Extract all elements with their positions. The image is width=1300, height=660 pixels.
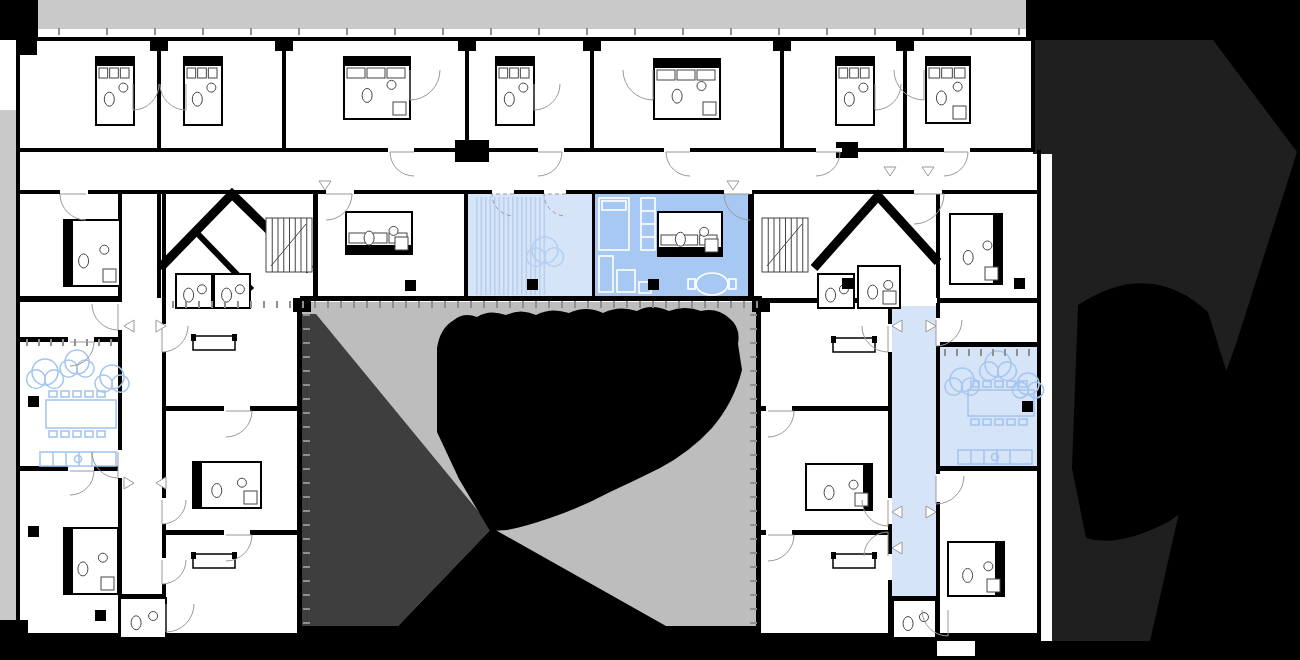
door-opening xyxy=(538,148,564,152)
kitchen-unit xyxy=(520,68,529,78)
door-opening xyxy=(68,337,94,342)
toilet-fixture xyxy=(672,89,682,103)
window-tick xyxy=(185,301,187,308)
toilet-fixture xyxy=(963,250,973,264)
west-walkway xyxy=(0,110,16,622)
bathroom-pod xyxy=(893,600,936,638)
window-tick xyxy=(303,566,310,568)
window-tick xyxy=(303,384,310,386)
window-tick xyxy=(756,301,758,308)
kitchen-unit xyxy=(942,68,953,78)
window-tick xyxy=(392,301,394,308)
kitchen-unit xyxy=(954,68,965,78)
window-tick xyxy=(586,28,588,35)
window-tick xyxy=(639,301,641,308)
window-tick xyxy=(302,301,304,308)
column xyxy=(1014,278,1025,289)
window-tick xyxy=(535,301,537,308)
window-tick xyxy=(442,28,444,35)
wall xyxy=(938,342,1039,347)
basin-fixture xyxy=(197,285,206,294)
shower-fixture xyxy=(101,577,114,590)
toilet-fixture xyxy=(675,232,685,246)
stair-tread xyxy=(791,218,792,272)
window-tick xyxy=(678,301,680,308)
window-tick xyxy=(444,301,446,308)
basin-fixture xyxy=(884,280,893,289)
kitchen-bar xyxy=(926,57,970,66)
window-tick xyxy=(298,28,300,35)
window-tick xyxy=(750,454,757,456)
door-opening xyxy=(492,190,514,194)
stair-tread xyxy=(779,218,780,272)
window-tick xyxy=(224,301,226,308)
window-tick xyxy=(750,328,757,330)
window-tick xyxy=(154,28,156,35)
window-tick xyxy=(778,28,780,35)
window-tick xyxy=(826,28,828,35)
wall xyxy=(465,41,469,148)
window-tick xyxy=(613,301,615,308)
lounge-hatch-line xyxy=(485,197,487,295)
window-tick xyxy=(237,301,239,308)
window-tick xyxy=(346,28,348,35)
desk-post xyxy=(872,336,877,343)
window-tick xyxy=(457,301,459,308)
window-tick xyxy=(303,594,310,596)
lounge-hatch-line xyxy=(503,197,505,295)
wall-pier xyxy=(752,298,770,312)
window-tick xyxy=(303,398,310,400)
wall xyxy=(748,190,754,298)
window-tick xyxy=(574,301,576,308)
basin-fixture xyxy=(237,478,246,487)
door-opening xyxy=(936,474,940,502)
desk xyxy=(193,336,235,350)
toilet-fixture xyxy=(963,568,973,582)
window-tick xyxy=(289,301,291,308)
lounge-hatch-line xyxy=(499,197,501,295)
toilet-fixture xyxy=(824,486,834,500)
toilet-fixture xyxy=(131,616,141,630)
shower-fixture xyxy=(883,291,896,304)
wall xyxy=(300,296,762,301)
window-tick xyxy=(62,339,64,346)
window-tick xyxy=(303,412,310,414)
lounge-hatch-line xyxy=(481,197,483,295)
shower-fixture xyxy=(393,102,406,115)
door-opening xyxy=(162,558,166,584)
window-tick xyxy=(743,301,745,308)
basin-fixture xyxy=(149,612,158,621)
window-tick xyxy=(522,301,524,308)
toilet-fixture xyxy=(903,617,913,631)
toilet-fixture xyxy=(212,484,222,498)
window-tick xyxy=(538,28,540,35)
window-tick xyxy=(652,301,654,308)
window-tick xyxy=(1028,349,1030,356)
kitchen-bar xyxy=(96,57,134,66)
wall xyxy=(464,194,468,298)
stair-tread xyxy=(278,218,279,272)
wall xyxy=(938,466,1039,471)
basin-fixture xyxy=(849,480,858,489)
desk-post xyxy=(232,334,237,341)
bathroom-pod xyxy=(96,57,134,125)
kitchen-unit xyxy=(510,68,519,78)
wall-pier xyxy=(773,41,791,51)
window-tick xyxy=(250,301,252,308)
basin-fixture xyxy=(984,562,993,571)
window-tick xyxy=(1004,349,1006,356)
window-tick xyxy=(750,398,757,400)
window-tick xyxy=(340,301,342,308)
toilet-fixture xyxy=(364,231,374,245)
window-tick xyxy=(263,301,265,308)
toilet-fixture xyxy=(868,285,878,299)
wall xyxy=(780,41,784,148)
window-tick xyxy=(750,440,757,442)
kitchen-bar xyxy=(496,57,534,66)
lounge-hatch-line xyxy=(517,197,519,295)
window-tick xyxy=(682,28,684,35)
lounge-hatch-line xyxy=(508,197,510,295)
window-tick xyxy=(110,339,112,346)
window-tick xyxy=(50,339,52,346)
door-opening xyxy=(766,406,792,411)
east-corridor[interactable] xyxy=(892,306,936,598)
door-opening xyxy=(914,190,942,194)
west-walkway-upper xyxy=(0,37,16,112)
window-tick xyxy=(38,339,40,346)
basin-fixture xyxy=(983,241,992,250)
window-tick xyxy=(26,339,28,346)
window-tick xyxy=(626,301,628,308)
lounge-hatch-line xyxy=(521,197,523,295)
stair-tread xyxy=(774,218,775,272)
door-opening xyxy=(326,190,354,194)
column xyxy=(527,279,538,290)
stair-tread xyxy=(797,218,798,272)
window-tick xyxy=(106,28,108,35)
door-opening xyxy=(766,530,792,535)
desk xyxy=(833,554,875,568)
kitchen-bar xyxy=(64,528,73,594)
wall xyxy=(590,41,594,148)
window-tick xyxy=(303,510,310,512)
door-opening xyxy=(544,190,566,194)
window-tick xyxy=(303,622,310,624)
window-tick xyxy=(303,482,310,484)
door-opening xyxy=(162,498,166,524)
wall-pier xyxy=(150,41,168,51)
door-opening xyxy=(664,148,690,152)
window-tick xyxy=(418,301,420,308)
window-tick xyxy=(303,356,310,358)
floor-plan-canvas xyxy=(0,0,1300,660)
window-tick xyxy=(634,28,636,35)
toilet-fixture xyxy=(844,92,854,106)
window-tick xyxy=(303,552,310,554)
column xyxy=(1022,401,1033,412)
kitchen-unit xyxy=(110,68,119,78)
kitchen-unit xyxy=(499,68,508,78)
window-tick xyxy=(483,301,485,308)
window-tick xyxy=(327,301,329,308)
lounge-hatch-line xyxy=(526,197,528,295)
wall xyxy=(313,190,318,300)
door-opening xyxy=(816,148,842,152)
toilet-fixture xyxy=(826,288,836,302)
window-tick xyxy=(202,28,204,35)
window-tick xyxy=(303,580,310,582)
window-tick xyxy=(750,482,757,484)
window-tick xyxy=(750,426,757,428)
desk xyxy=(833,338,875,352)
wall-pier xyxy=(458,41,476,51)
door-opening xyxy=(888,554,892,580)
window-tick xyxy=(750,538,757,540)
terrace-edge xyxy=(37,29,1026,37)
shower-fixture xyxy=(953,106,966,119)
basin-fixture xyxy=(207,83,216,92)
kitchen-unit xyxy=(697,70,715,80)
window-tick xyxy=(750,412,757,414)
window-tick xyxy=(750,608,757,610)
window-tick xyxy=(303,608,310,610)
door-opening xyxy=(888,324,892,352)
window-tick xyxy=(750,552,757,554)
window-tick xyxy=(509,301,511,308)
window-tick xyxy=(730,301,732,308)
basin-fixture xyxy=(119,83,128,92)
kitchen-bar xyxy=(193,462,202,508)
kitchen-unit xyxy=(677,70,695,80)
window-tick xyxy=(561,301,563,308)
window-tick xyxy=(750,580,757,582)
window-tick xyxy=(750,622,757,624)
stair-tread xyxy=(802,218,803,272)
door-opening xyxy=(224,530,250,535)
door-opening xyxy=(724,190,752,194)
south-exit-notch xyxy=(937,641,975,656)
kitchen-bar xyxy=(184,57,222,66)
window-tick xyxy=(303,342,310,344)
window-tick xyxy=(691,301,693,308)
window-tick xyxy=(98,339,100,346)
window-tick xyxy=(956,349,958,356)
wall xyxy=(157,190,161,298)
basin-fixture xyxy=(697,82,706,91)
window-tick xyxy=(704,301,706,308)
window-tick xyxy=(58,28,60,35)
window-tick xyxy=(303,314,310,316)
shower-fixture xyxy=(987,579,1000,592)
bathroom-pod xyxy=(120,598,166,638)
kitchen-unit xyxy=(850,68,859,78)
kitchen-unit xyxy=(187,68,196,78)
column xyxy=(842,278,853,289)
wall xyxy=(16,296,120,302)
roof-terrace xyxy=(37,0,1026,33)
door-opening xyxy=(118,302,122,330)
door-opening xyxy=(388,148,414,152)
window-tick xyxy=(944,349,946,356)
desk-post xyxy=(831,552,836,559)
stair-tread xyxy=(283,218,284,272)
lounge-hatch-line xyxy=(512,197,514,295)
kitchen-unit xyxy=(99,68,108,78)
window-tick xyxy=(600,301,602,308)
basin-fixture xyxy=(389,226,398,235)
kitchen-unit xyxy=(120,68,129,78)
window-tick xyxy=(750,384,757,386)
basin-fixture xyxy=(953,82,962,91)
column xyxy=(648,279,659,290)
toilet-fixture xyxy=(78,562,88,576)
kitchen-bar xyxy=(836,57,874,66)
window-tick xyxy=(750,566,757,568)
desk-post xyxy=(232,552,237,559)
lounge-hatch-line xyxy=(476,197,478,295)
window-tick xyxy=(431,301,433,308)
kitchen-unit xyxy=(347,68,365,78)
window-tick xyxy=(548,301,550,308)
northwest-corner xyxy=(0,0,38,40)
door-opening xyxy=(224,406,250,411)
lounge-hatch-line xyxy=(539,197,541,295)
wall xyxy=(16,148,1035,152)
wall xyxy=(16,190,1037,194)
column xyxy=(28,526,39,537)
toilet-fixture xyxy=(504,92,514,106)
wall-pier xyxy=(896,41,914,51)
window-tick xyxy=(717,301,719,308)
wall xyxy=(282,41,286,148)
kitchen-unit xyxy=(198,68,207,78)
toilet-fixture xyxy=(936,91,946,105)
basin-fixture xyxy=(100,245,109,254)
shower-fixture xyxy=(703,102,716,115)
window-tick xyxy=(366,301,368,308)
window-tick xyxy=(922,28,924,35)
bathroom-pod xyxy=(184,57,222,125)
window-tick xyxy=(314,301,316,308)
window-tick xyxy=(303,468,310,470)
window-tick xyxy=(750,370,757,372)
toilet-fixture xyxy=(362,88,372,102)
south-edge xyxy=(0,641,1300,660)
kitchen-unit xyxy=(387,68,405,78)
bathroom-pod xyxy=(496,57,534,125)
wall-pier xyxy=(455,140,489,162)
window-tick xyxy=(353,301,355,308)
kitchen-unit xyxy=(208,68,217,78)
window-tick xyxy=(379,301,381,308)
window-tick xyxy=(394,28,396,35)
lounge-hatch-line xyxy=(490,197,492,295)
window-tick xyxy=(198,301,200,308)
wall xyxy=(592,194,595,298)
wall xyxy=(157,41,161,148)
desk-post xyxy=(191,334,196,341)
toilet-fixture xyxy=(192,92,202,106)
kitchen-bar xyxy=(64,220,73,286)
kitchen-bar xyxy=(654,59,720,68)
window-tick xyxy=(303,496,310,498)
wall xyxy=(756,302,761,641)
window-tick xyxy=(874,28,876,35)
kitchen-unit xyxy=(860,68,869,78)
toilet-fixture xyxy=(79,254,89,268)
window-tick xyxy=(211,301,213,308)
window-tick xyxy=(490,28,492,35)
wall xyxy=(16,37,1035,41)
door-opening xyxy=(60,190,88,194)
window-tick xyxy=(750,468,757,470)
window-tick xyxy=(750,510,757,512)
bathroom-pod xyxy=(836,57,874,125)
window-tick xyxy=(750,594,757,596)
desk-post xyxy=(872,552,877,559)
window-tick xyxy=(303,538,310,540)
column xyxy=(95,610,106,621)
kitchen-bar xyxy=(344,57,410,66)
basin-fixture xyxy=(235,285,244,294)
window-tick xyxy=(968,349,970,356)
shower-fixture xyxy=(244,491,257,504)
door-opening xyxy=(944,148,970,152)
window-tick xyxy=(303,524,310,526)
lounge-hatch-line xyxy=(544,197,546,295)
desk-post xyxy=(191,552,196,559)
door-opening xyxy=(118,450,122,478)
stair-tread xyxy=(295,218,296,272)
desk-post xyxy=(831,336,836,343)
toilet-fixture xyxy=(104,92,114,106)
east-facade-strip xyxy=(1041,150,1052,641)
kitchen-unit xyxy=(929,68,940,78)
floor-plan-svg xyxy=(0,0,1300,660)
basin-fixture xyxy=(700,227,709,236)
window-tick xyxy=(750,342,757,344)
lounge-hatch-line xyxy=(494,197,496,295)
wall xyxy=(937,298,1037,303)
window-tick xyxy=(750,524,757,526)
window-tick xyxy=(276,301,278,308)
basin-fixture xyxy=(98,553,107,562)
window-tick xyxy=(1016,349,1018,356)
window-tick xyxy=(750,356,757,358)
toilet-fixture xyxy=(184,288,194,302)
window-tick xyxy=(665,301,667,308)
wall-pier xyxy=(583,41,601,51)
toilet-fixture xyxy=(222,288,232,302)
door-opening xyxy=(888,498,892,524)
window-tick xyxy=(172,301,174,308)
window-tick xyxy=(750,496,757,498)
stair-tread xyxy=(301,218,302,272)
basin-fixture xyxy=(387,80,396,89)
stair-tread xyxy=(306,218,307,272)
window-tick xyxy=(1018,28,1020,35)
window-tick xyxy=(750,314,757,316)
shower-fixture xyxy=(985,267,998,280)
shower-fixture xyxy=(855,493,868,506)
window-tick xyxy=(992,349,994,356)
window-tick xyxy=(303,370,310,372)
wall-pier xyxy=(275,41,293,51)
